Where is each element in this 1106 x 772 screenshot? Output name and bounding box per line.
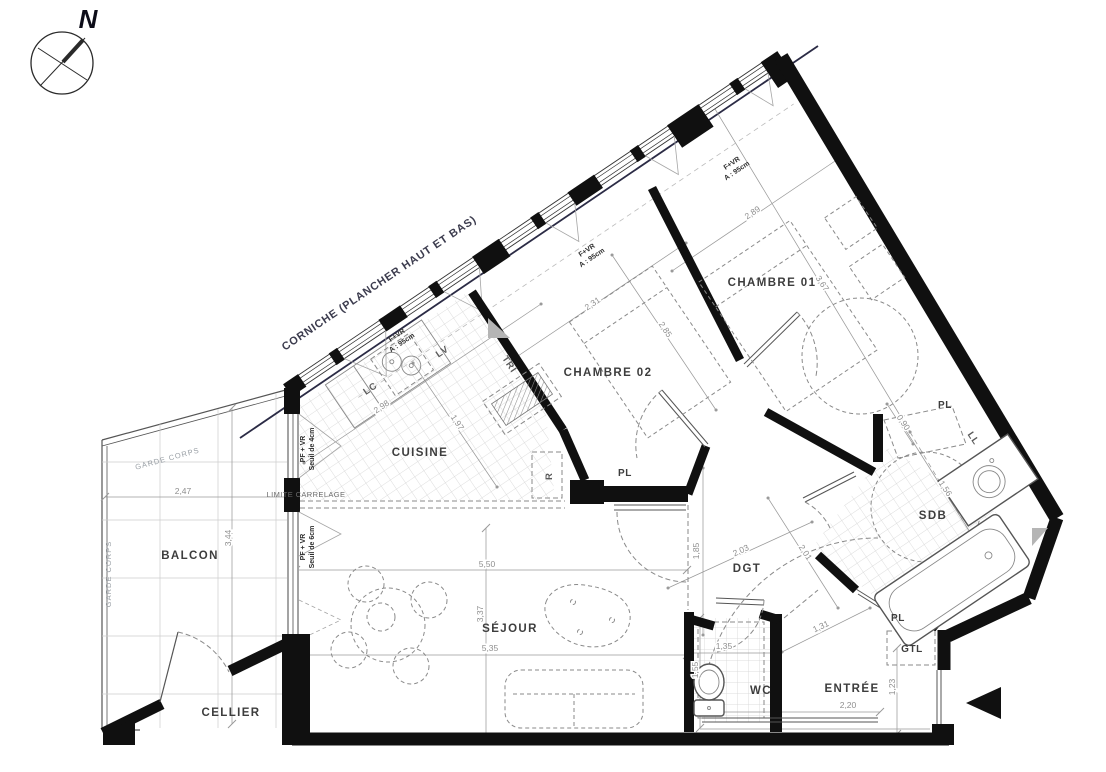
limite-carrelage-label: LIMITE CARRELAGE	[267, 490, 346, 499]
pl-chambre01-box	[884, 406, 966, 458]
room-label-sejour: SÉJOUR	[482, 622, 538, 635]
threshold-note: PF + VR Seuil de 6cm	[300, 526, 316, 569]
dimension-label: 3,37	[475, 605, 485, 622]
garde-corps-label: GARDE CORPS	[134, 446, 200, 472]
threshold-note-type: PF + VR	[300, 436, 307, 463]
appliance-label-ll: LL	[965, 430, 982, 447]
dimension-label: 2,03	[731, 542, 750, 558]
turning-circle-chambre01	[802, 298, 918, 414]
room-label-cellier: CELLIER	[202, 707, 261, 719]
closet-label-pl: PL	[891, 613, 905, 624]
bed-chambre-01	[699, 221, 877, 412]
dimension-label: 1,31	[811, 618, 830, 634]
dimension-label: 2,47	[175, 486, 192, 496]
coffee-table	[545, 585, 630, 647]
dimension-label: 2,85	[657, 320, 675, 340]
dimension-label: 1,55	[690, 661, 700, 678]
window-note: F+VR A : 95cm	[573, 240, 606, 269]
door-chambre-02	[636, 390, 708, 458]
dimension-label: 3,44	[223, 529, 233, 546]
door-chambre-01	[744, 312, 817, 376]
room-label-dgt: DGT	[733, 563, 761, 575]
entrance-arrow-icon	[966, 687, 1001, 719]
floor-plan-page: N CHAMBRE 01 CHAMBRE 02 CUISINE SÉJOUR B…	[0, 0, 1106, 772]
threshold-note-type: PF + VR	[300, 534, 307, 561]
closet-label-pl: PL	[938, 400, 952, 411]
dimension-label: 2,01	[797, 543, 815, 563]
appliance-label-r: R	[544, 472, 555, 480]
threshold-note-sill: Seuil de 6cm	[309, 526, 316, 569]
room-label-cuisine: CUISINE	[392, 447, 448, 459]
room-label-wc: WC	[750, 685, 772, 697]
sofa	[505, 670, 643, 728]
dimension-label: 5,35	[482, 643, 499, 653]
dimension-label: 2,20	[840, 700, 857, 710]
room-label-balcon: BALCON	[161, 550, 219, 562]
dimension-label: 1,23	[887, 678, 897, 695]
dimension-label: 2,31	[583, 295, 603, 313]
room-label-chambre-01: CHAMBRE 01	[728, 277, 817, 289]
door-cellier	[160, 632, 229, 702]
room-label-entree: ENTRÉE	[824, 682, 879, 695]
compass-north-label: N	[79, 4, 99, 34]
compass-icon: N	[31, 4, 99, 94]
tiled-floors	[298, 292, 1000, 722]
dimension-label: 1,35	[716, 641, 733, 651]
closet-label-pl: PL	[618, 468, 632, 479]
room-label-chambre-02: CHAMBRE 02	[564, 367, 653, 379]
dimension-label: 1,85	[691, 542, 701, 559]
dimension-label: 2,89	[743, 204, 763, 222]
dimension-label: 5,50	[479, 559, 496, 569]
room-label-sdb: SDB	[919, 510, 947, 522]
floor-plan: N CHAMBRE 01 CHAMBRE 02 CUISINE SÉJOUR B…	[0, 0, 1106, 772]
threshold-note-sill: Seuil de 4cm	[309, 428, 316, 471]
dining-table	[331, 566, 447, 684]
doors	[160, 312, 941, 724]
dimension-label: 0,90	[895, 413, 913, 433]
window-note: F+VR A : 95cm	[718, 153, 751, 182]
door-sejour	[614, 505, 687, 582]
closet-label-gtl: GTL	[901, 644, 923, 655]
garde-corps-label: GARDE CORPS	[104, 541, 113, 607]
